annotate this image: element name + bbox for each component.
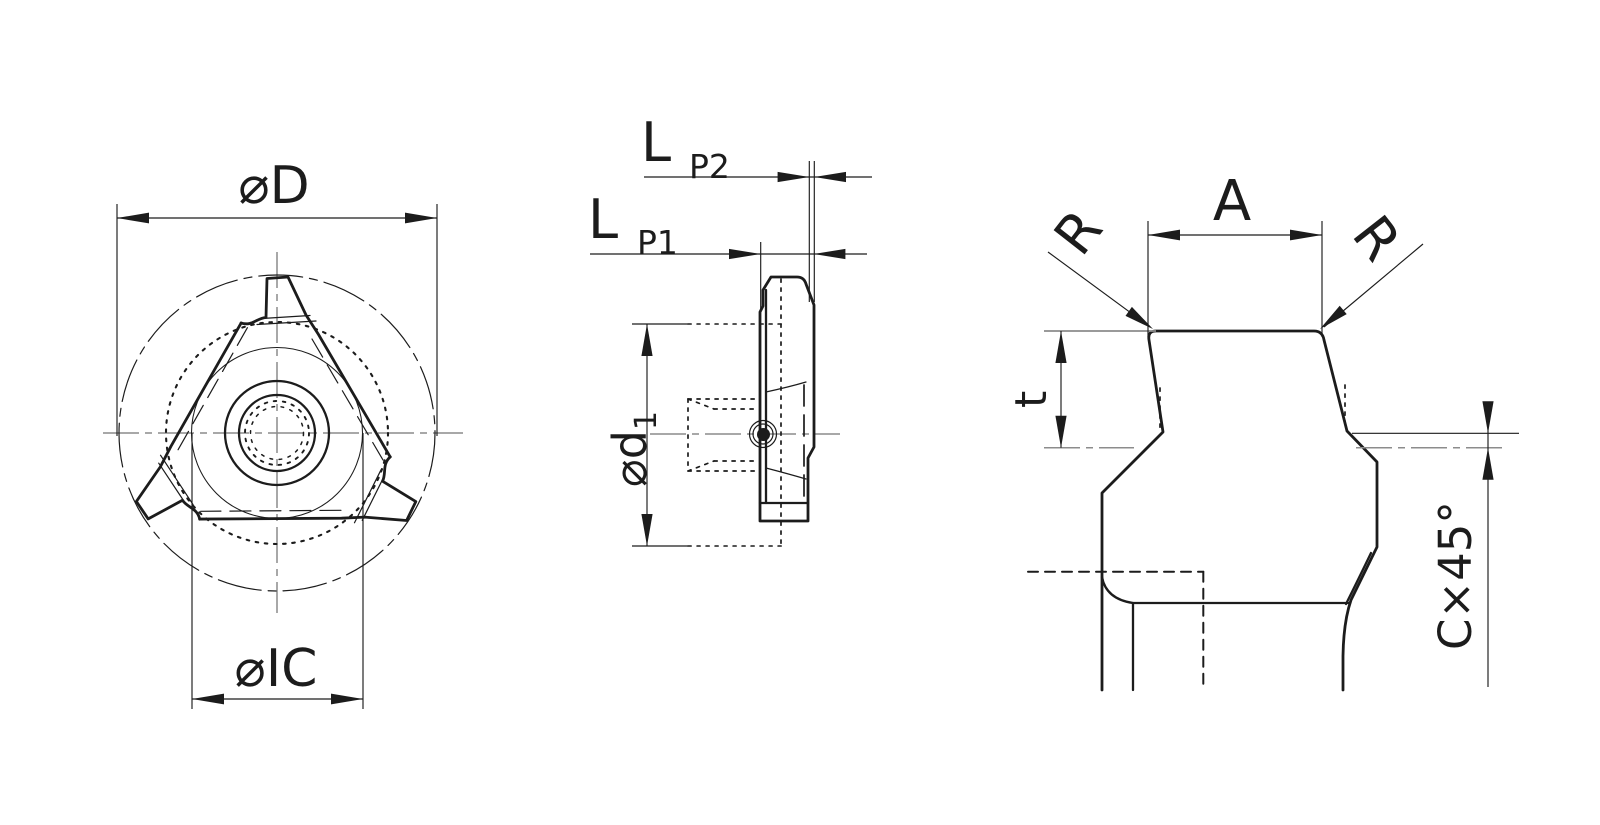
label-inscribed-circle: ⌀IC [235, 639, 318, 699]
dim-pitch-p1: L P1 [588, 188, 867, 310]
label-width-a: A [1213, 169, 1251, 234]
label-bore-d1: ⌀d1 [603, 411, 664, 487]
hidden-pocket-lines [1028, 572, 1203, 690]
screw-hole [750, 421, 777, 448]
label-depth-t: t [1006, 391, 1057, 408]
label-lp1-sub: P1 [637, 223, 678, 262]
dim-bore-d1: ⌀d1 [603, 324, 783, 546]
profile-outline [1102, 331, 1377, 690]
surface-curve-bottom [766, 468, 806, 479]
insert-side-view: L P2 L P1 ⌀d1 [588, 111, 872, 546]
dim-depth-t: t [1006, 331, 1067, 448]
label-lp2-main: L [641, 111, 671, 174]
chamfer-band-line [1346, 553, 1371, 604]
radius-callout-right: R [1320, 204, 1423, 329]
label-lp2-sub: P2 [689, 147, 730, 186]
dim-width-a: A [1148, 169, 1322, 337]
label-outer-diameter: ⌀D [238, 156, 309, 216]
insert-top-view: ⌀D ⌀IC [85, 156, 463, 709]
engineering-drawing-canvas: ⌀D ⌀IC [0, 0, 1600, 825]
dim-pitch-p2: L P2 [641, 111, 872, 302]
label-lp1-main: L [588, 188, 618, 251]
insert-outline [760, 277, 814, 521]
surface-curve-top [766, 382, 806, 392]
radius-callout-left: R [1042, 198, 1153, 329]
pocket-shoulder [1102, 577, 1350, 603]
ghost-tooth-hidden [688, 399, 757, 471]
label-chamfer: C×45° [1429, 501, 1482, 650]
cutting-edge-profile-view: A R R t [1006, 169, 1519, 690]
insert-tooth-segment [85, 321, 318, 542]
